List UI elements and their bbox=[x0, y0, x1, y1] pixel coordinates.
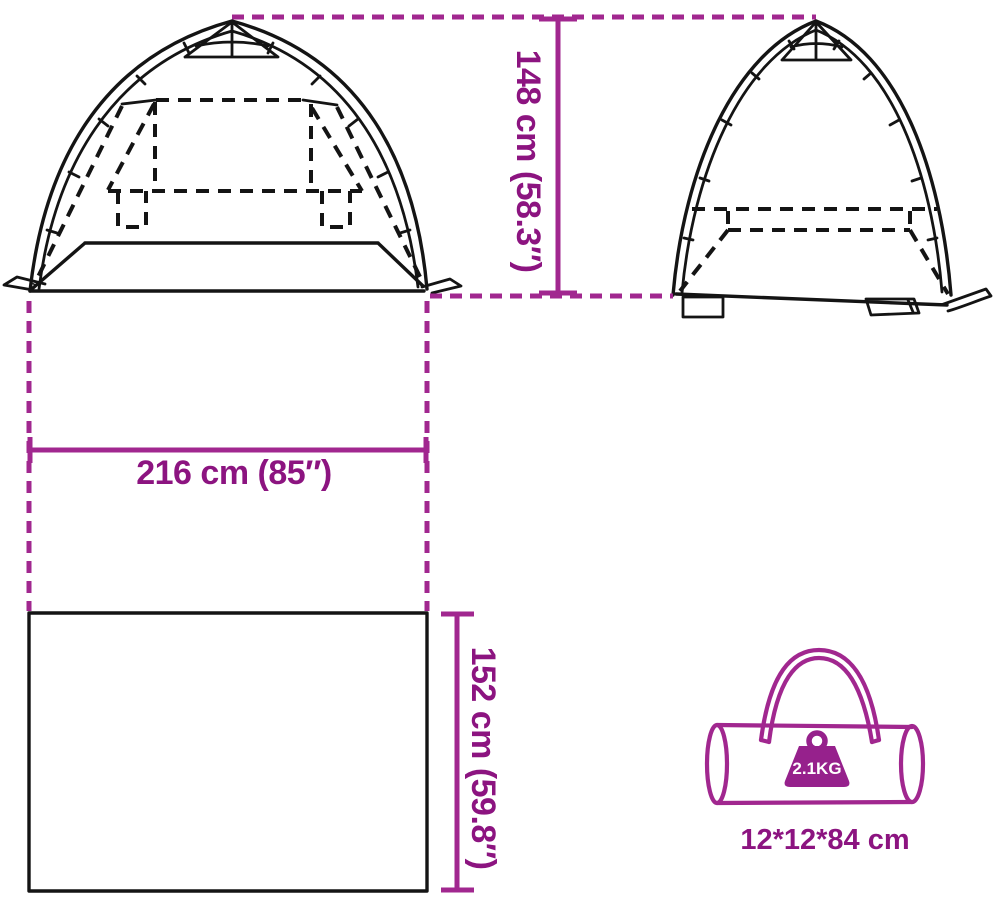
tent-front-view-icon bbox=[4, 21, 461, 293]
bag-weight-label: 2.1KG bbox=[757, 759, 877, 779]
height-dimension-label: 148 cm (58.3″) bbox=[509, 11, 547, 311]
carry-bag-icon bbox=[707, 650, 923, 803]
tent-dimensions-diagram: 148 cm (58.3″) 216 cm (85″) 152 cm (59.8… bbox=[0, 0, 1001, 916]
width-dimension-label: 216 cm (85″) bbox=[84, 454, 384, 494]
groundsheet-outline bbox=[29, 613, 427, 891]
depth-dimension-label: 152 cm (59.8″) bbox=[464, 608, 502, 908]
dimension-guides bbox=[29, 17, 816, 611]
tent-side-view-icon bbox=[673, 21, 991, 317]
bag-size-label: 12*12*84 cm bbox=[675, 823, 975, 857]
